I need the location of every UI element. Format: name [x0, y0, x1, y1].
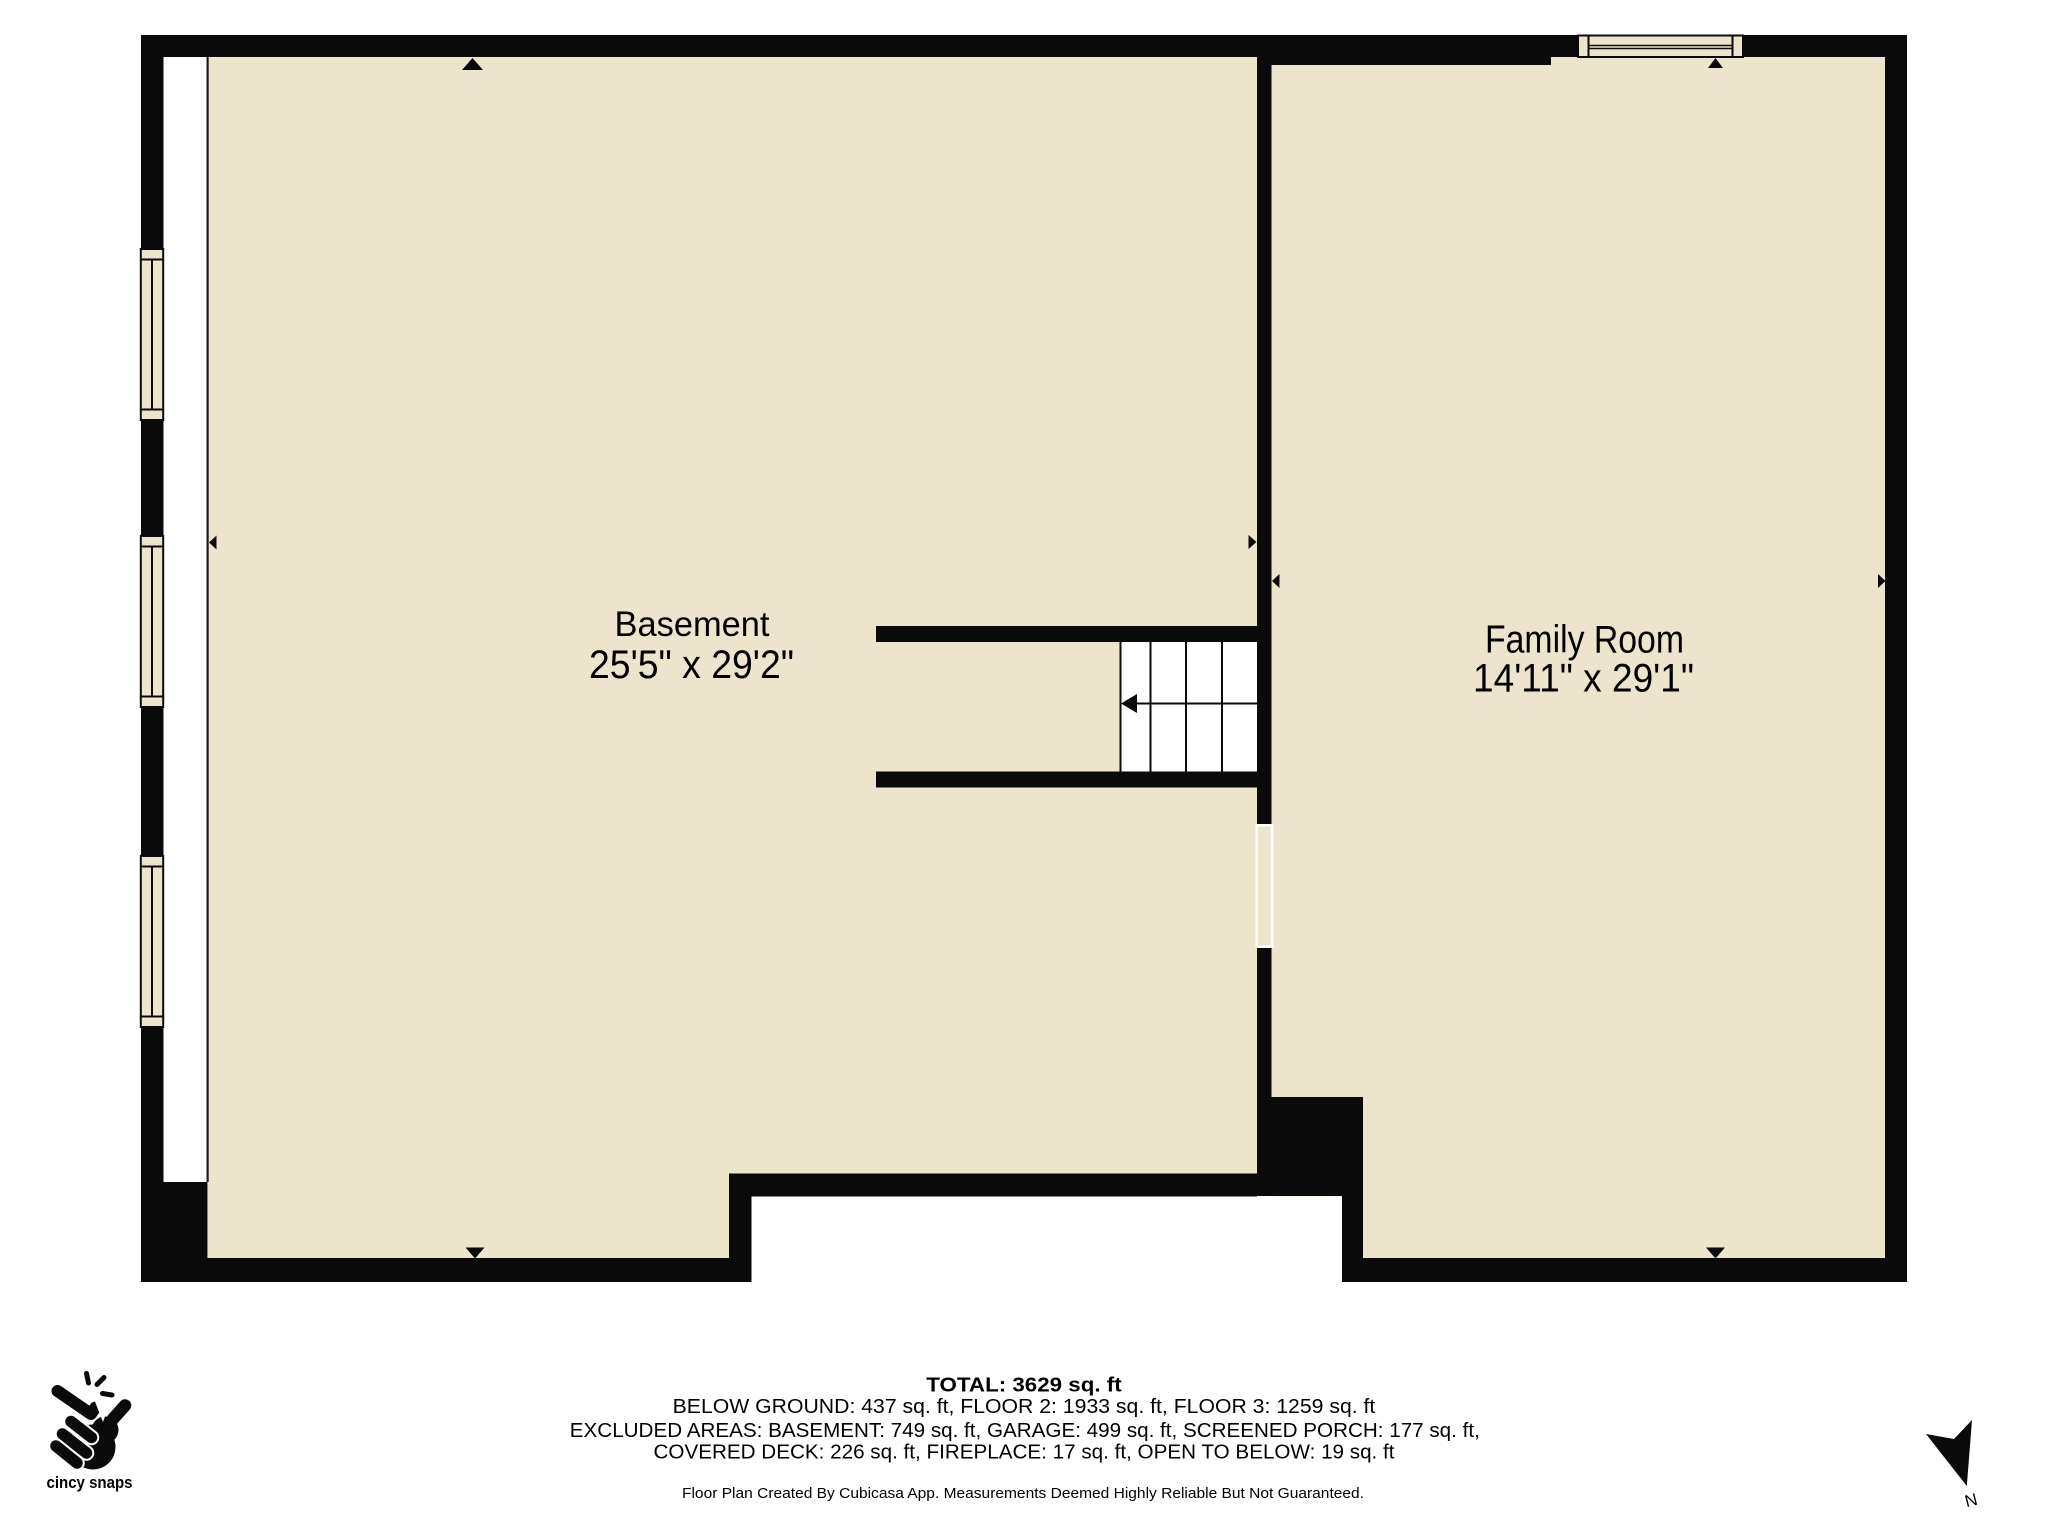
svg-text:BELOW GROUND: 437 sq. ft, FLOO: BELOW GROUND: 437 sq. ft, FLOOR 2: 1933 …	[673, 1396, 1376, 1418]
svg-text:Basement: Basement	[615, 605, 770, 644]
svg-text:Family Room: Family Room	[1485, 619, 1684, 662]
svg-text:TOTAL: 3629 sq. ft: TOTAL: 3629 sq. ft	[926, 1374, 1122, 1396]
svg-text:COVERED DECK: 226 sq. ft, FIRE: COVERED DECK: 226 sq. ft, FIREPLACE: 17 …	[654, 1442, 1395, 1464]
svg-text:cincy snaps: cincy snaps	[47, 1474, 133, 1492]
svg-text:14'11" x 29'1": 14'11" x 29'1"	[1473, 657, 1694, 701]
svg-text:25'5" x 29'2": 25'5" x 29'2"	[589, 643, 794, 687]
svg-text:EXCLUDED AREAS: BASEMENT: 749: EXCLUDED AREAS: BASEMENT: 749 sq. ft, GA…	[570, 1420, 1480, 1442]
svg-text:Floor Plan Created By Cubicasa: Floor Plan Created By Cubicasa App. Meas…	[682, 1486, 1364, 1502]
